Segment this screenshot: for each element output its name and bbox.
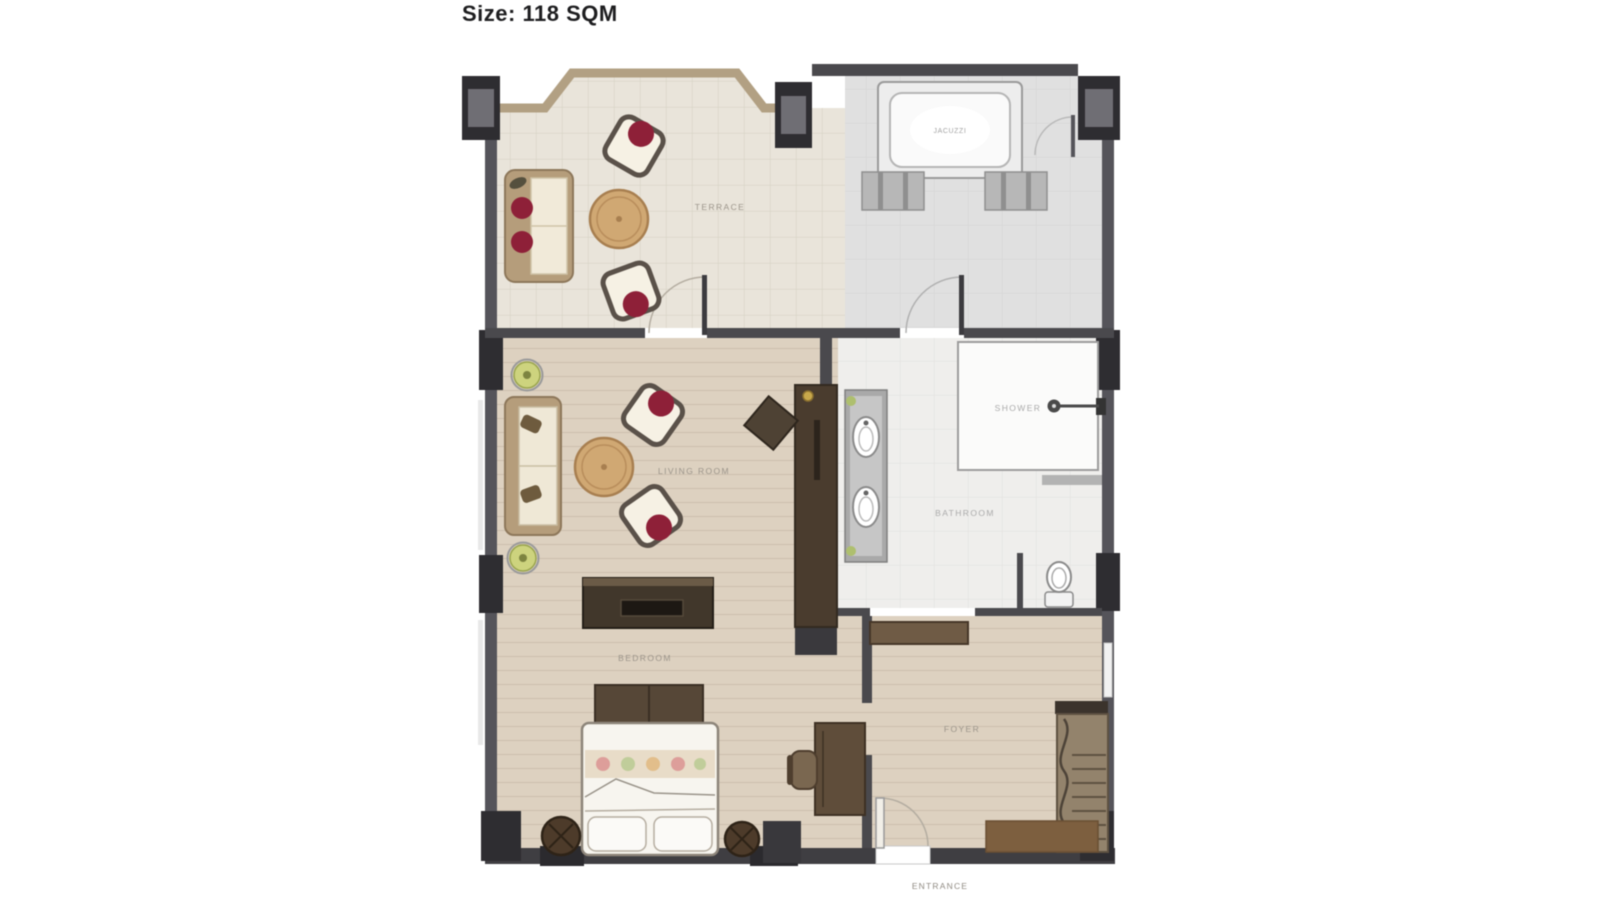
wardrobe-panel	[795, 385, 837, 627]
bed	[582, 685, 718, 855]
foyer-bench	[870, 622, 968, 644]
terrace-lounge-sofa	[505, 170, 573, 282]
foyer-label: FOYER	[944, 724, 980, 734]
coffee-table	[575, 438, 633, 496]
jacuzzi-bench-right	[985, 172, 1047, 210]
plant-top	[512, 360, 543, 391]
bedside-pouf-left	[542, 817, 580, 855]
floor-plan-page: Size: 118 SQM	[0, 0, 1600, 900]
faucet-icon	[864, 421, 869, 426]
terrace-round-table	[590, 190, 648, 248]
size-label: Size: 118 SQM	[462, 1, 618, 27]
entry-mat	[986, 821, 1098, 852]
terrace-label: TERRACE	[695, 202, 745, 212]
plant-bottom	[508, 543, 539, 574]
faucet-icon	[864, 491, 869, 496]
floor-plan: TERRACE JACUZZI LIVING ROOM BATHROOM SHO…	[458, 55, 1138, 900]
bedroom-label: BEDROOM	[618, 653, 672, 663]
bedside-pouf-right	[725, 822, 759, 856]
shower-label: SHOWER	[995, 403, 1042, 413]
door-knob-icon	[803, 391, 813, 401]
living-room-label: LIVING ROOM	[658, 466, 730, 476]
toilet	[1045, 562, 1073, 607]
jacuzzi-bench-left	[862, 172, 924, 210]
living-sofa	[505, 397, 561, 535]
desk-chair	[787, 751, 817, 789]
jacuzzi-label: JACUZZI	[934, 128, 967, 135]
bathroom-label: BATHROOM	[935, 508, 995, 518]
pillow	[588, 817, 646, 851]
desk	[815, 723, 865, 815]
pillow	[654, 817, 712, 851]
vanity	[845, 390, 887, 562]
entrance-label: ENTRANCE	[912, 881, 968, 891]
tv-console	[583, 578, 713, 628]
